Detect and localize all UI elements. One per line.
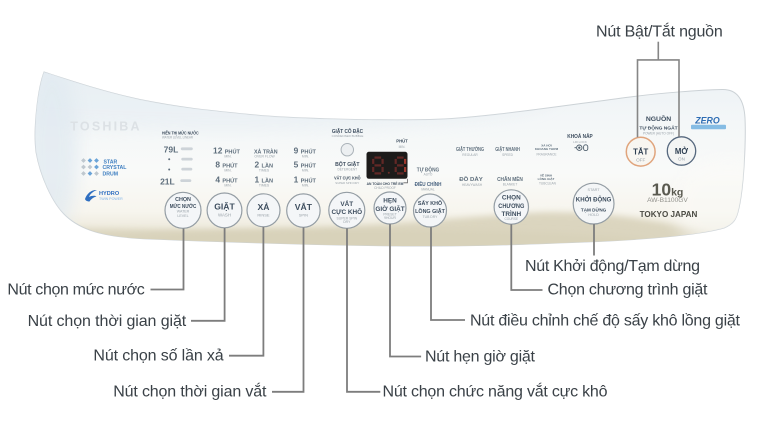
svg-text:DRY: DRY	[343, 220, 351, 224]
svg-text:VẮT: VẮT	[340, 199, 353, 208]
svg-text:SUPER SPIN DRY: SUPER SPIN DRY	[335, 181, 359, 185]
svg-text:CHILD PROOF: CHILD PROOF	[374, 186, 396, 190]
svg-text:MANUAL: MANUAL	[421, 187, 435, 191]
svg-text:LỒNG GIẶT: LỒNG GIẶT	[538, 176, 555, 181]
svg-text:Nút chọn mức nước: Nút chọn mức nước	[7, 282, 144, 299]
svg-text:GIẶT: GIẶT	[214, 202, 235, 212]
svg-text:Nút hẹn giờ giặt: Nút hẹn giờ giặt	[425, 348, 536, 365]
svg-text:TIMES: TIMES	[259, 168, 270, 172]
svg-text:TOKYO JAPAN: TOKYO JAPAN	[640, 209, 698, 219]
svg-text:MỞ: MỞ	[675, 147, 688, 156]
svg-text:Nút Khởi động/Tạm dừng: Nút Khởi động/Tạm dừng	[525, 258, 700, 275]
svg-text:AUTO: AUTO	[424, 173, 433, 177]
svg-text:SPIN: SPIN	[299, 213, 308, 218]
svg-text:MIN.: MIN.	[302, 168, 309, 172]
svg-text:79L: 79L	[164, 144, 179, 154]
svg-text:KHOÁ NẮP: KHOÁ NẮP	[567, 132, 593, 140]
svg-text:BLANKET: BLANKET	[503, 183, 518, 187]
svg-text:XẢ: XẢ	[258, 201, 270, 212]
svg-text:MIN.: MIN.	[302, 155, 309, 159]
svg-text:CHỌN: CHỌN	[175, 197, 191, 203]
svg-text:MIN.: MIN.	[224, 168, 231, 172]
svg-text:CRYSTAL: CRYSTAL	[103, 165, 128, 171]
svg-text:Nút điều chỉnh chế độ sấy khô: Nút điều chỉnh chế độ sấy khô lồng giặt	[470, 313, 741, 330]
svg-text:21L: 21L	[160, 177, 175, 187]
svg-text:HEAVYWASH: HEAVYWASH	[462, 183, 483, 187]
svg-text:DRUM: DRUM	[103, 172, 119, 178]
svg-text:Nút Bật/Tắt nguồn: Nút Bật/Tắt nguồn	[596, 22, 723, 41]
svg-text:CONDENSED BUBBLE: CONDENSED BUBBLE	[332, 134, 364, 138]
svg-text:MỨC NƯỚC: MỨC NƯỚC	[170, 202, 197, 210]
svg-text:DETERGENT: DETERGENT	[337, 167, 357, 171]
svg-text:HOLD: HOLD	[588, 213, 599, 217]
svg-text:VẮT CỰC KHÔ: VẮT CỰC KHÔ	[334, 174, 361, 181]
svg-text:KHOANG THƠM: KHOANG THƠM	[535, 147, 559, 151]
svg-text:TOSHIBA: TOSHIBA	[70, 120, 141, 134]
svg-text:POWER (AUTO OFF): POWER (AUTO OFF)	[643, 132, 674, 136]
svg-text:LID LOCK: LID LOCK	[573, 140, 587, 144]
svg-text:HẸN: HẸN	[383, 198, 397, 205]
svg-text:9HOUR: 9HOUR	[384, 216, 396, 220]
svg-text:OVER FLOW: OVER FLOW	[254, 155, 275, 159]
svg-text:CHƯƠNG: CHƯƠNG	[498, 203, 524, 210]
svg-text:MIN.: MIN.	[302, 183, 309, 187]
svg-text:START: START	[588, 188, 601, 192]
svg-text:Nút chọn số lần xả: Nút chọn số lần xả	[93, 347, 223, 364]
svg-text:WATER LEVEL LINEAR: WATER LEVEL LINEAR	[162, 136, 193, 140]
svg-text:LEVEL: LEVEL	[177, 214, 188, 218]
svg-text:PHÚT: PHÚT	[396, 138, 408, 144]
svg-text:KHỞI ĐỘNG: KHỞI ĐỘNG	[576, 194, 612, 203]
svg-text:SẤY KHÔ: SẤY KHÔ	[418, 199, 443, 207]
svg-text:ON: ON	[678, 157, 685, 162]
svg-text:Nút chọn thời gian giặt: Nút chọn thời gian giặt	[28, 313, 187, 330]
svg-text:RINSE: RINSE	[257, 213, 270, 218]
svg-text:HYDRO: HYDRO	[99, 191, 120, 197]
svg-text:Nút chọn chức năng vắt cực khô: Nút chọn chức năng vắt cực khô	[383, 381, 608, 400]
svg-text:VẮT: VẮT	[295, 202, 313, 212]
svg-text:WASH: WASH	[218, 213, 231, 218]
svg-text:TWIN POWER: TWIN POWER	[99, 197, 123, 201]
svg-text:TUB DRY: TUB DRY	[423, 215, 439, 219]
svg-text:MIN.: MIN.	[399, 145, 406, 149]
svg-text:SPEED: SPEED	[502, 153, 514, 157]
svg-text:TUBCLEAN: TUBCLEAN	[539, 182, 557, 186]
svg-text:TẮT: TẮT	[633, 147, 648, 156]
svg-text:ZERO: ZERO	[694, 115, 720, 125]
svg-text:CHỌN: CHỌN	[502, 194, 521, 201]
svg-text:OFF: OFF	[636, 158, 645, 163]
svg-text:Nút chọn thời gian vắt: Nút chọn thời gian vắt	[113, 381, 267, 400]
svg-text:WATER: WATER	[177, 210, 190, 214]
svg-text:REGULAR: REGULAR	[462, 153, 478, 157]
svg-text:TIMES: TIMES	[259, 183, 270, 187]
svg-text:GIẶT THƯỜNG: GIẶT THƯỜNG	[456, 145, 484, 153]
svg-text:AW-B1100GV: AW-B1100GV	[647, 198, 688, 204]
svg-text:MIN.: MIN.	[224, 155, 231, 159]
svg-text:Chọn chương trình giặt: Chọn chương trình giặt	[548, 281, 709, 298]
svg-text:FRAGRANCE: FRAGRANCE	[536, 153, 556, 157]
svg-text:CỰC KHÔ: CỰC KHÔ	[332, 207, 363, 216]
svg-text:MIN.: MIN.	[224, 183, 231, 187]
svg-text:COURSE: COURSE	[504, 217, 518, 221]
